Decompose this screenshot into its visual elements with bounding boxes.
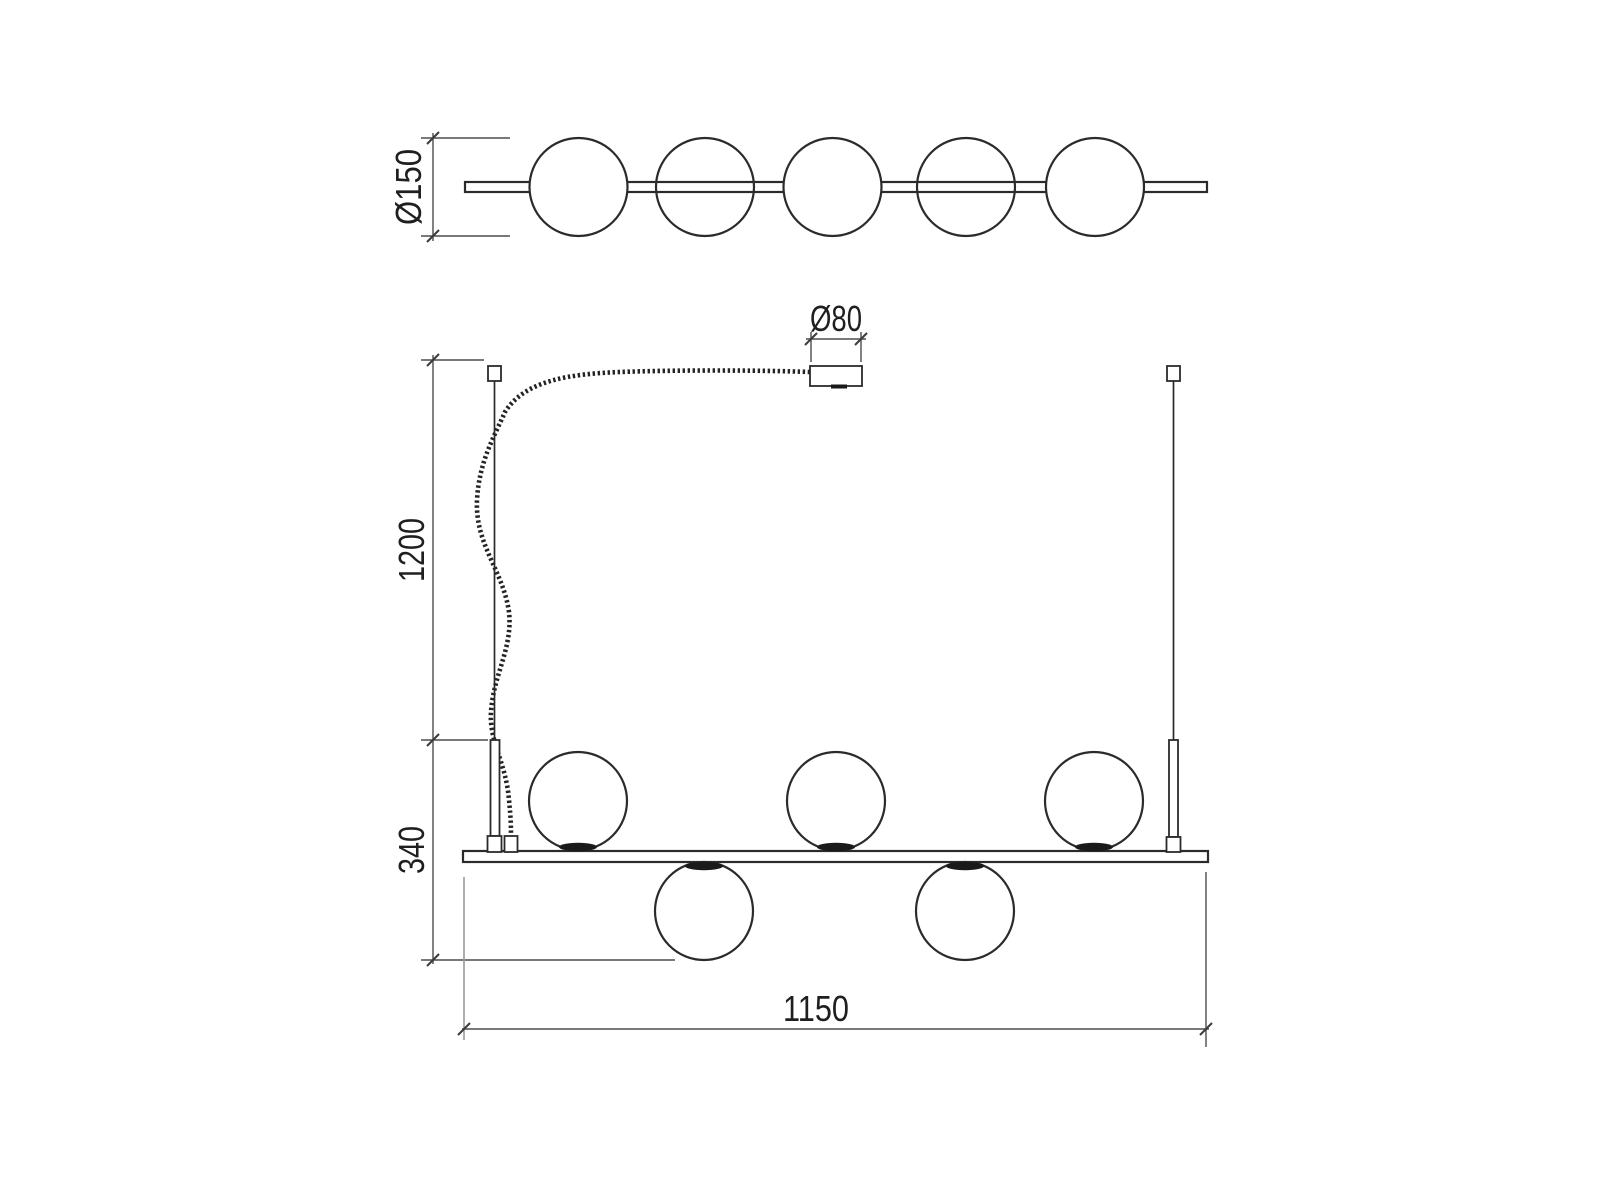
globe-mount-pad bbox=[685, 862, 723, 870]
front-globe-top-2 bbox=[787, 752, 885, 850]
dimension-suspension-and-body: 1200 340 bbox=[391, 354, 675, 966]
wire-ceiling-cap-right bbox=[1167, 366, 1180, 381]
top-view-globe-3 bbox=[784, 138, 882, 236]
front-globe-top-3 bbox=[1045, 752, 1143, 850]
power-cable bbox=[477, 371, 810, 839]
dim-label-canopy-diameter: Ø80 bbox=[810, 298, 862, 339]
wire-ceiling-cap-left bbox=[488, 366, 501, 381]
dim-label-globe-diameter: Ø150 bbox=[388, 149, 429, 225]
dim-label-bar-length: 1150 bbox=[783, 988, 849, 1029]
suspension-left bbox=[488, 366, 501, 836]
front-globe-top-1 bbox=[529, 752, 627, 850]
front-globe-bottom-2 bbox=[916, 862, 1014, 960]
cable-connector bbox=[505, 836, 518, 852]
wire-sleeve-right bbox=[1169, 740, 1178, 837]
suspension-right bbox=[1167, 366, 1180, 837]
globe-mount-pad bbox=[559, 843, 597, 851]
globe-mount-pad bbox=[817, 843, 855, 851]
globe-mount-pad bbox=[1075, 843, 1113, 851]
top-view-globe-5 bbox=[1046, 138, 1144, 236]
wire-connector-left bbox=[488, 836, 502, 852]
top-view: Ø150 bbox=[388, 132, 1207, 242]
top-view-globe-1 bbox=[530, 138, 628, 236]
ceiling-canopy bbox=[810, 366, 862, 386]
dimension-canopy-diameter: Ø80 bbox=[805, 298, 867, 362]
front-view-bar bbox=[463, 851, 1208, 862]
front-globe-bottom-1 bbox=[655, 862, 753, 960]
wire-sleeve-left bbox=[491, 740, 500, 836]
technical-drawing-canvas: Ø150 bbox=[0, 0, 1600, 1200]
drawing-page: Ø150 bbox=[0, 0, 1600, 1200]
canopy-cable-exit bbox=[831, 385, 847, 389]
wire-connector-right bbox=[1167, 837, 1181, 852]
dim-label-suspension-length: 1200 bbox=[391, 518, 432, 582]
globe-mount-pad bbox=[946, 862, 984, 870]
dim-label-body-height: 340 bbox=[391, 826, 432, 874]
front-view: 1200 340 Ø80 1150 bbox=[391, 298, 1212, 1047]
